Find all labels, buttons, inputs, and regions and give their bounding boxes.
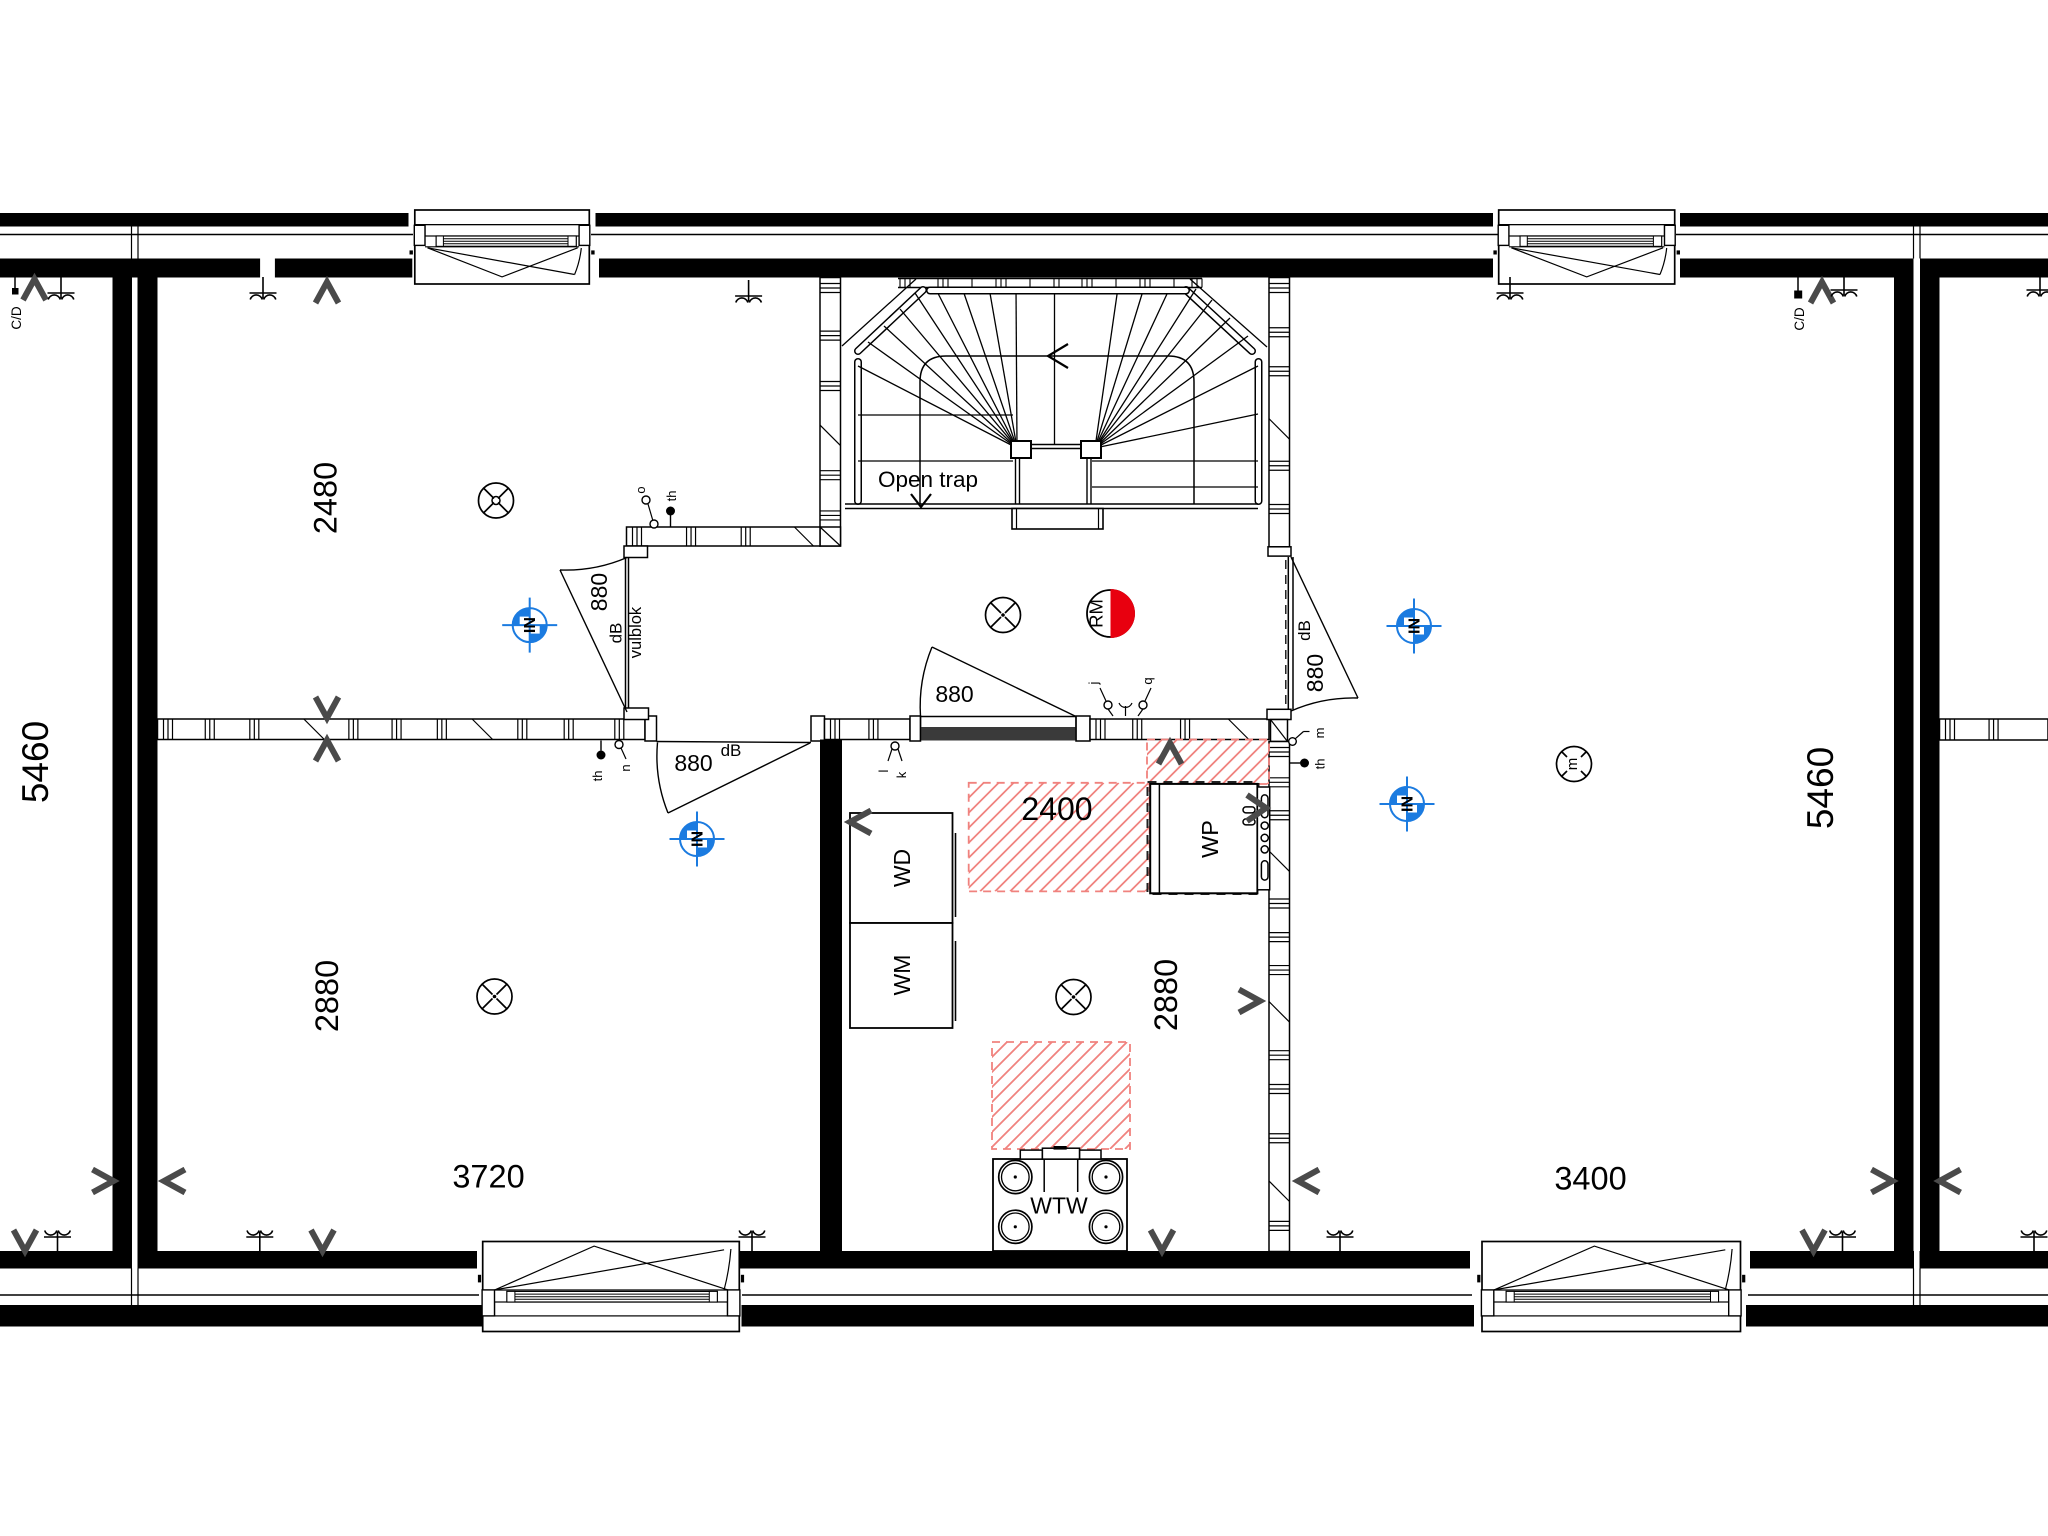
svg-text:C/D: C/D <box>9 306 24 330</box>
svg-text:m: m <box>1564 758 1581 771</box>
svg-text:2400: 2400 <box>1021 791 1092 827</box>
svg-text:880: 880 <box>674 750 712 776</box>
svg-text:2880: 2880 <box>1148 959 1184 1031</box>
svg-text:l: l <box>876 769 891 772</box>
svg-text:C/D: C/D <box>1792 307 1807 331</box>
svg-text:5460: 5460 <box>1800 747 1841 829</box>
svg-text:vulblok: vulblok <box>627 606 645 658</box>
svg-text:j: j <box>1086 681 1101 685</box>
svg-text:880: 880 <box>935 681 973 707</box>
svg-text:m: m <box>1312 728 1327 739</box>
svg-text:WD: WD <box>889 849 915 887</box>
svg-text:q: q <box>1140 677 1155 684</box>
svg-text:2880: 2880 <box>309 960 345 1032</box>
svg-text:WTW: WTW <box>1030 1193 1088 1219</box>
svg-text:dB: dB <box>1295 620 1314 641</box>
svg-text:880: 880 <box>1302 654 1328 692</box>
svg-text:k: k <box>894 771 909 778</box>
svg-text:o: o <box>633 486 648 493</box>
svg-text:3720: 3720 <box>452 1159 524 1195</box>
svg-text:880: 880 <box>586 573 612 611</box>
svg-text:WM: WM <box>889 955 915 996</box>
svg-text:Open trap: Open trap <box>878 467 978 492</box>
svg-text:5460: 5460 <box>15 721 56 803</box>
svg-text:th: th <box>664 491 679 502</box>
svg-text:3400: 3400 <box>1554 1161 1626 1197</box>
svg-text:dB: dB <box>721 741 742 760</box>
svg-text:WP: WP <box>1197 820 1223 858</box>
svg-text:n: n <box>618 764 633 771</box>
svg-text:dB: dB <box>607 623 626 644</box>
svg-text:th: th <box>590 771 605 782</box>
svg-text:th: th <box>1313 759 1328 770</box>
svg-text:RM: RM <box>1086 599 1107 628</box>
svg-text:2480: 2480 <box>308 462 344 534</box>
